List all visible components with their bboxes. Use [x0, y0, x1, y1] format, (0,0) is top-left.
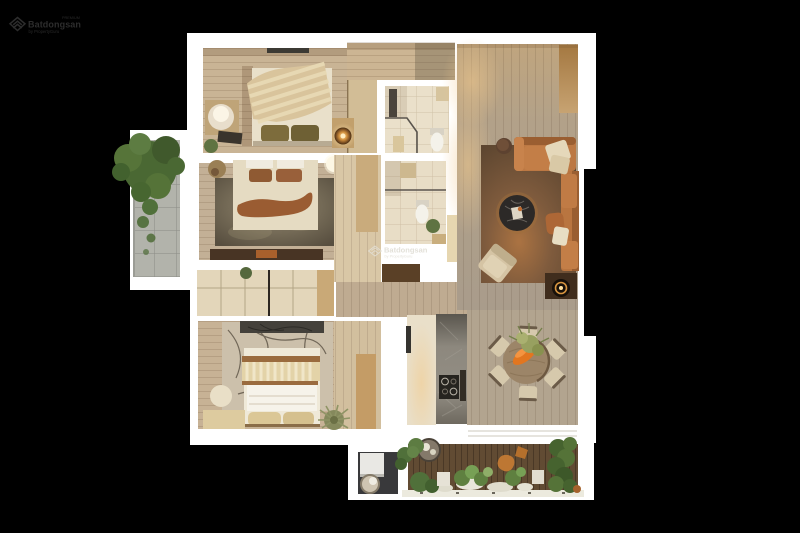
svg-text:PREMIUM: PREMIUM	[62, 16, 80, 20]
svg-text:by PropertyGuru: by PropertyGuru	[29, 29, 60, 34]
svg-text:by PropertyGuru: by PropertyGuru	[453, 426, 482, 431]
svg-text:Batdongsan: Batdongsan	[28, 20, 81, 30]
svg-text:Batdongsan: Batdongsan	[418, 426, 447, 432]
svg-text:Batdongsan: Batdongsan	[544, 425, 573, 431]
svg-text:Batdongsan: Batdongsan	[384, 246, 428, 255]
svg-text:by PropertyGuru: by PropertyGuru	[385, 255, 413, 259]
